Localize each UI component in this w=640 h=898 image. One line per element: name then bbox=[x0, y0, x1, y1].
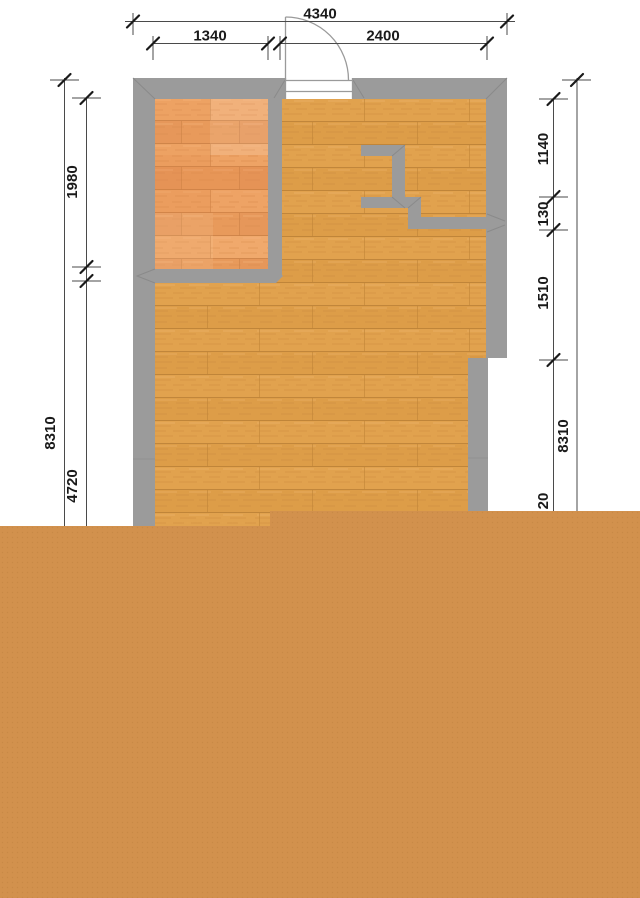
wall-small-room-bottom bbox=[155, 269, 276, 283]
dim-label-20: 20 bbox=[535, 493, 552, 510]
dim-label-130: 130 bbox=[535, 201, 552, 226]
wall-small-room-right bbox=[268, 99, 282, 276]
main-floor-lower bbox=[155, 358, 468, 527]
dim-label-1140: 1140 bbox=[535, 133, 552, 166]
wall-flue-middle bbox=[361, 197, 412, 208]
dim-label-left-8310: 8310 bbox=[42, 416, 59, 449]
wall-top-left-segment bbox=[133, 78, 285, 99]
wall-right-lower bbox=[468, 358, 488, 511]
floor-plan-canvas: 4340 1340 2400 8310 1980 4720 bbox=[0, 0, 640, 898]
dim-label-4340: 4340 bbox=[303, 6, 336, 23]
dim-label-1340: 1340 bbox=[193, 28, 226, 45]
wall-flue-step bbox=[408, 197, 421, 229]
wall-top-right-segment bbox=[353, 78, 507, 99]
dim-label-right-8310: 8310 bbox=[555, 419, 572, 452]
wall-flue-vertical bbox=[392, 145, 405, 202]
dim-label-1980: 1980 bbox=[64, 165, 81, 198]
wall-flue-lower bbox=[421, 217, 487, 229]
dim-label-1510: 1510 bbox=[535, 276, 552, 309]
main-floor-middle bbox=[155, 283, 486, 358]
dim-label-4720: 4720 bbox=[64, 469, 81, 502]
floors bbox=[153, 98, 486, 527]
dim-label-2400: 2400 bbox=[366, 28, 399, 45]
main-floor-upper bbox=[282, 99, 486, 283]
floor-plan-svg: 4340 1340 2400 8310 1980 4720 bbox=[0, 0, 640, 898]
orange-overlay bbox=[0, 511, 640, 898]
